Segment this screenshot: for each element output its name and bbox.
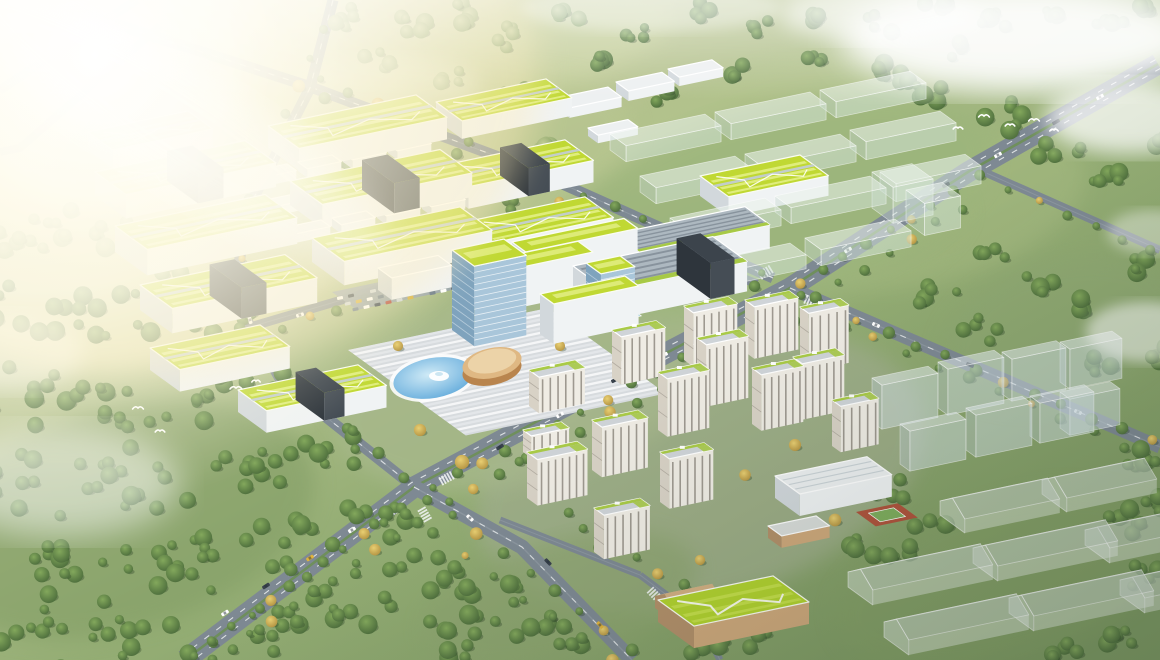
aerial-render-viewport (0, 0, 1160, 660)
vignette (0, 0, 1160, 660)
aerial-render (0, 0, 1160, 660)
